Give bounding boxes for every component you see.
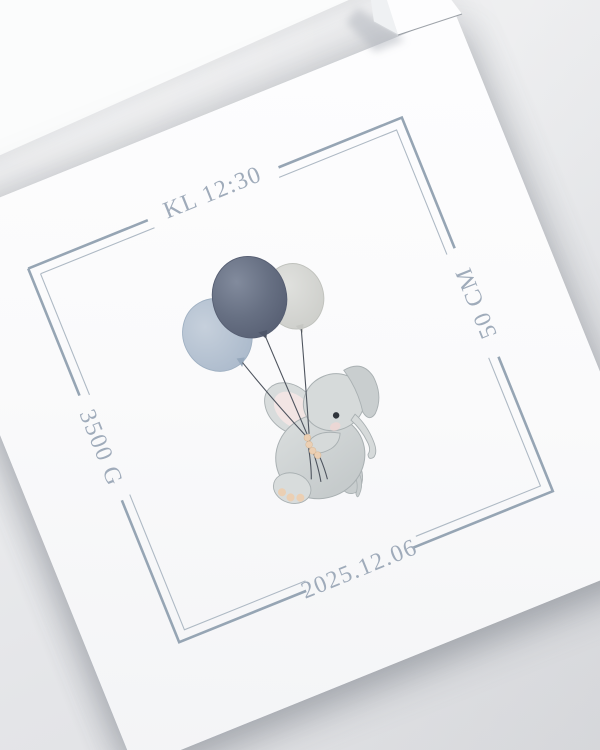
photo-scene: KL 12:30 50 CM 3500 G 2025.12.06	[0, 0, 600, 750]
paper-stack-corner	[330, 0, 500, 120]
